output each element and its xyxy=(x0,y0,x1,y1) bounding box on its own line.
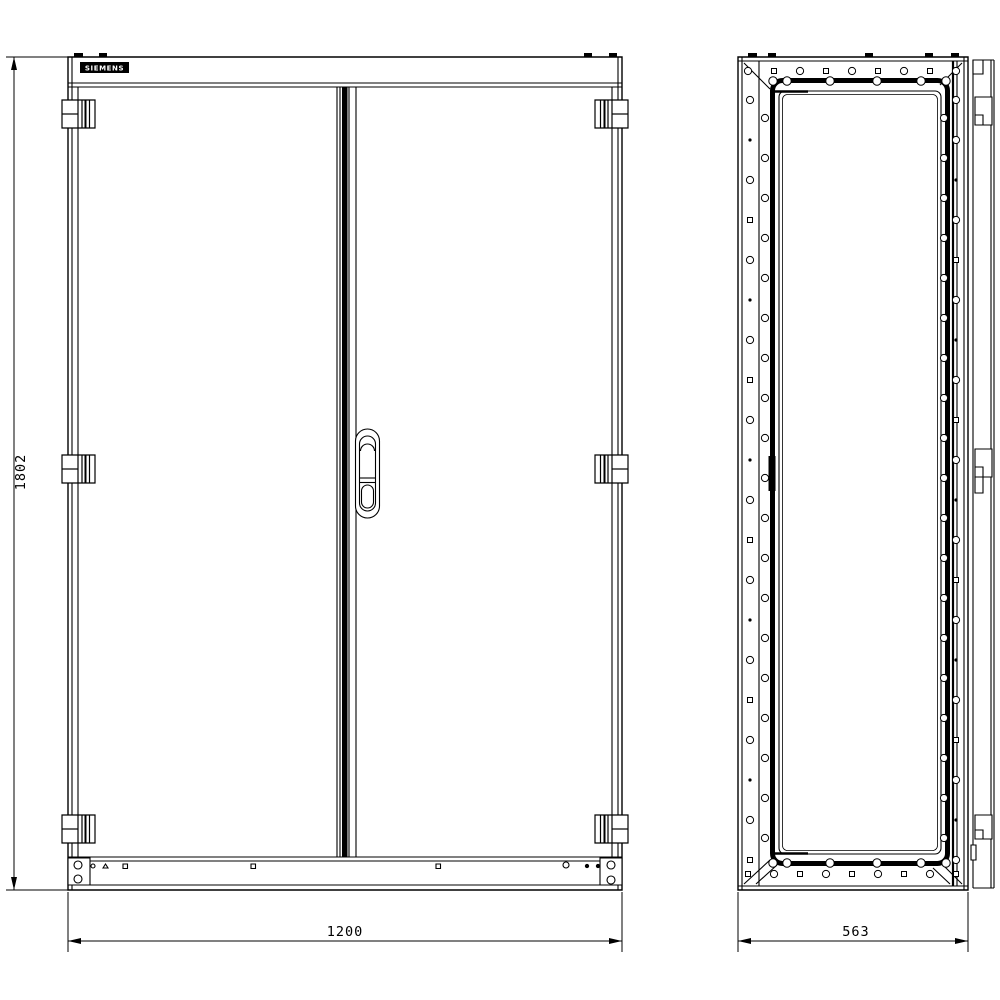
technical-drawing: SIEMENS xyxy=(0,0,1000,1000)
brand-logo: SIEMENS xyxy=(80,62,129,73)
hinge-top-left xyxy=(62,100,95,128)
hinge-bottom-right xyxy=(595,815,628,843)
side-hinge-knuckle-middle xyxy=(975,449,992,493)
base-bracket-left xyxy=(68,858,90,885)
door-handle xyxy=(356,429,380,518)
dimension-depth: 563 xyxy=(738,892,968,952)
hinge-middle-right xyxy=(595,455,628,483)
dimension-depth-label: 563 xyxy=(842,924,869,940)
hinge-bottom-left xyxy=(62,815,95,843)
side-hinge-knuckle-top xyxy=(975,97,992,125)
side-door-edge-strip xyxy=(971,60,994,888)
dimension-height-label: 1802 xyxy=(13,454,29,491)
front-view: SIEMENS xyxy=(62,53,628,890)
hinge-middle-left xyxy=(62,455,95,483)
side-handle xyxy=(769,456,776,491)
dimension-width-label: 1200 xyxy=(327,924,364,940)
hinge-top-right xyxy=(595,100,628,128)
brand-logo-text: SIEMENS xyxy=(85,65,124,73)
drawing-canvas: SIEMENS xyxy=(0,0,1000,1000)
dimension-height: 1802 xyxy=(6,57,68,890)
side-hinge-knuckle-bottom xyxy=(975,815,992,839)
dimension-width: 1200 xyxy=(68,892,622,952)
base-bracket-right xyxy=(600,858,622,885)
side-view xyxy=(738,53,994,890)
door-gap-shadow xyxy=(342,87,348,857)
